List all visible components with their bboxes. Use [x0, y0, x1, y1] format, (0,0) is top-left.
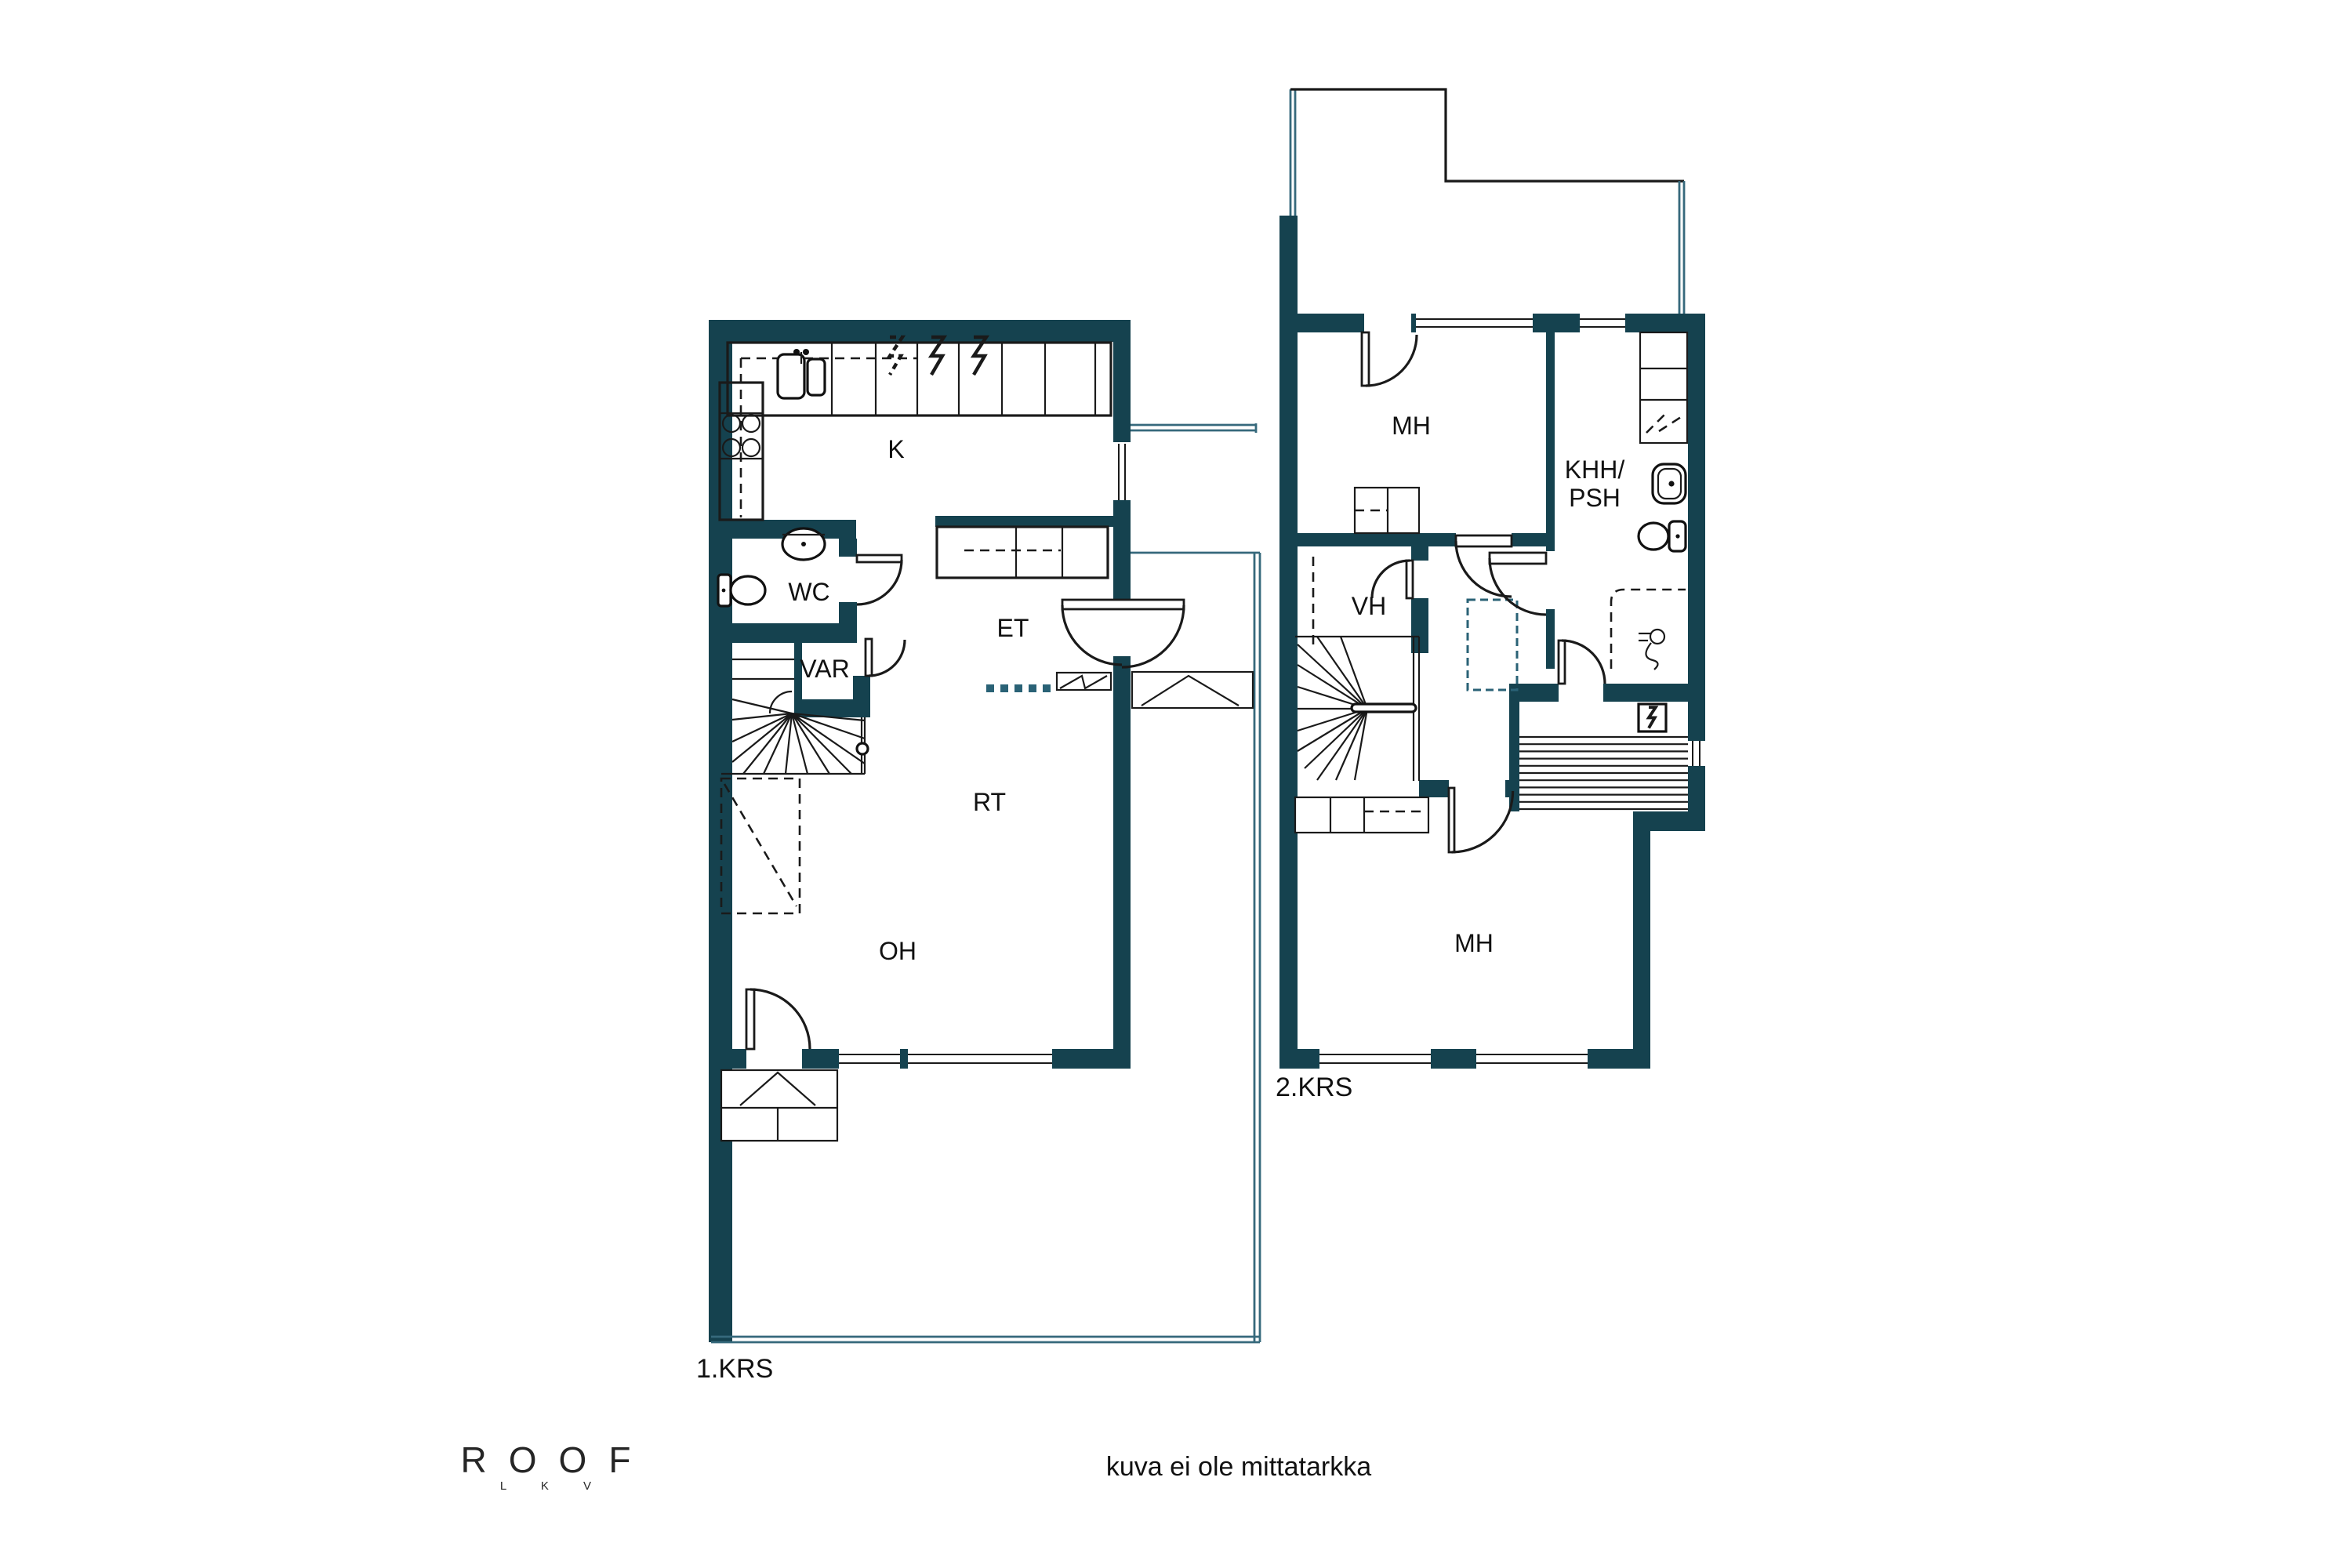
- window-mh-bottom-1: [1319, 1049, 1431, 1069]
- room-label-mh-bottom: MH: [1454, 929, 1494, 957]
- khh-toilet-icon: [1639, 521, 1686, 551]
- room-label-khh: KHH/: [1565, 456, 1625, 484]
- room-label-et: ET: [997, 614, 1029, 642]
- floor1-title: 1.KRS: [696, 1354, 773, 1384]
- understair-storage: [721, 779, 800, 913]
- wc-toilet-icon: [718, 575, 765, 606]
- wc-sink-icon: [782, 528, 825, 560]
- staircase-floor2: [1295, 637, 1419, 781]
- khh-sink-icon: [1653, 464, 1686, 503]
- room-label-oh: OH: [879, 937, 916, 965]
- floor1-plan: K WC VAR ET RT OH 1.KRS: [696, 320, 1260, 1384]
- window-kitchen-east: [1113, 443, 1131, 500]
- room-label-rt: RT: [973, 788, 1006, 816]
- disclaimer-text: kuva ei ole mittatarkka: [1106, 1452, 1371, 1482]
- door-mh-top: [1456, 535, 1512, 597]
- floor2-doors: [1362, 332, 1605, 852]
- window-mh-top-1: [1416, 314, 1533, 332]
- footer: ROOF L K V kuva ei ole mittatarkka: [461, 1439, 1372, 1493]
- room-label-mh-top: MH: [1392, 412, 1431, 440]
- entry-step: [1057, 673, 1111, 690]
- sauna-benches: [1519, 737, 1688, 809]
- entry-sideboard: [937, 527, 1108, 578]
- room-label-kitchen: K: [887, 435, 904, 463]
- yard-outlines: [711, 423, 1260, 1342]
- roof-logo: ROOF: [461, 1439, 653, 1480]
- door-living-terrace: [746, 989, 810, 1049]
- floor2-labels: MH KHH/ PSH VH MH 2.KRS: [1276, 412, 1624, 1102]
- floor2-title: 2.KRS: [1276, 1073, 1352, 1102]
- balcony-outline: [1290, 89, 1684, 314]
- door-var: [866, 639, 905, 676]
- room-label-wc: WC: [788, 578, 829, 606]
- shower-area: [1611, 590, 1686, 670]
- door-mh-bottom: [1449, 788, 1513, 852]
- floor-plan-canvas: K WC VAR ET RT OH 1.KRS: [0, 0, 2352, 1568]
- window-living-south-1: [839, 1049, 900, 1069]
- porch-bench: [1132, 672, 1253, 708]
- khh-appliance-column: [1640, 332, 1687, 443]
- room-label-psh: PSH: [1569, 484, 1621, 512]
- terrace-steps: [721, 1070, 837, 1141]
- kitchen-sink-icon: [778, 349, 825, 398]
- shower-mixer-icon: [1639, 630, 1664, 670]
- door-sauna: [1559, 641, 1605, 684]
- room-label-vh: VH: [1352, 592, 1386, 620]
- dresser-mh-bottom: [1295, 797, 1428, 833]
- room-label-var: VAR: [800, 655, 849, 683]
- door-balcony: [1362, 332, 1417, 386]
- wardrobe-mh-top: [1355, 488, 1419, 533]
- floor2-furniture: [1295, 332, 1688, 833]
- door-wc: [857, 555, 902, 604]
- floor1-walls: [709, 320, 1131, 1342]
- stairwell-void: [1468, 600, 1517, 690]
- kitchen-counter: [728, 337, 1111, 416]
- window-living-south-2: [908, 1049, 1052, 1069]
- floor1-windows: [839, 443, 1131, 1069]
- floor2-plan: MH KHH/ PSH VH MH 2.KRS: [1276, 89, 1705, 1102]
- window-khh: [1580, 314, 1625, 332]
- window-sauna: [1688, 741, 1705, 766]
- sauna-stove-icon: [1639, 704, 1666, 731]
- window-mh-bottom-2: [1476, 1049, 1588, 1069]
- roof-logo-sub: L K V: [500, 1479, 607, 1493]
